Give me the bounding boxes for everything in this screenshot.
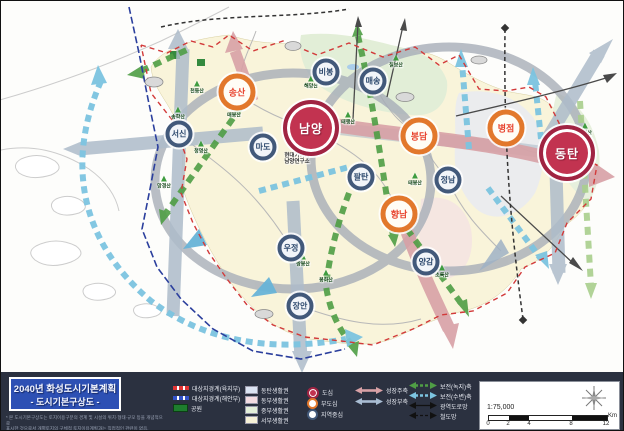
city-node-label: 송산	[229, 86, 246, 99]
scale-tick-label: 0	[486, 421, 489, 427]
park-patch	[197, 59, 205, 66]
legend-item: 철도망	[409, 411, 472, 421]
city-node-label: 정남	[441, 175, 456, 186]
legend-label: 도심	[322, 388, 333, 397]
legend-label: 보전(수변)축	[440, 392, 472, 401]
screenshot-frame: ▲천등산▲송학산▲매봉산▲청명산▲망경산▲해망산▲칠보산▲태행산▲태봉산▲쌍봉산…	[0, 0, 624, 431]
legend-item: 중부생활권	[245, 405, 289, 415]
mountain-icon: ▲	[319, 269, 333, 278]
map-title: 2040년 화성도시기본계획	[14, 381, 116, 395]
city-node-label: 봉담	[411, 130, 428, 143]
legend-axis-group-a: 성장주축성장부축	[355, 385, 408, 407]
legend-label: 성장주축	[386, 386, 408, 395]
compass-icon	[581, 385, 607, 411]
node-swatch	[307, 409, 318, 420]
footnote-line2: 표시한 것으로서 개별토지의 구체적 토지이용계획과는 직접적인 관련이 없음.	[6, 426, 166, 431]
mountain-icon: ▲	[157, 175, 171, 184]
mountain-label: 태행산	[341, 120, 355, 126]
city-node-jiyeok: 우정	[278, 235, 305, 262]
mountain-icon: ▲	[389, 54, 403, 63]
map-graphics	[1, 1, 624, 372]
city-node-label: 동탄	[555, 145, 579, 162]
city-node-budosim: 송산	[219, 74, 256, 111]
mountain-label: 천등산	[190, 89, 204, 95]
legend-label: 대상지경계(육지부)	[192, 384, 240, 393]
mountain-label: 망경산	[157, 184, 171, 190]
city-node-budosim: 봉담	[401, 118, 438, 155]
legend-node-group: 도심부도심지역중심	[307, 387, 343, 420]
city-node-label: 서신	[172, 129, 187, 140]
scale-tick-label: 2	[506, 421, 509, 427]
legend-label: 성장부축	[386, 397, 408, 406]
mountain-marker: ▲봉화산	[319, 269, 333, 284]
mountain-icon: ▲	[171, 106, 185, 115]
legend-item: 도심	[307, 387, 343, 398]
zone-swatch	[245, 386, 258, 394]
scale-tick-label: 4	[527, 421, 530, 427]
mountain-marker: ▲태봉산	[408, 172, 422, 187]
lake	[347, 64, 359, 70]
legend-label: 지역중심	[321, 410, 343, 419]
mountain-marker: ▲망경산	[157, 175, 171, 190]
city-node-label: 마도	[256, 142, 271, 153]
mountain-icon: ▲	[190, 80, 204, 89]
city-node-label: 장안	[293, 301, 308, 312]
zone-swatch	[245, 416, 258, 424]
legend-label: 서부생활권	[261, 416, 289, 425]
city-node-budosim: 병점	[488, 110, 525, 147]
mountain-label: 태봉산	[408, 181, 422, 187]
mountain-label: 칠보산	[389, 63, 403, 69]
scale-ratio: 1:75,000	[487, 404, 514, 411]
legend-item: 서부생활권	[245, 415, 289, 425]
mountain-icon: ▲	[194, 140, 208, 149]
area-label-line: 남양연구소	[284, 159, 309, 165]
title-box: 2040년 화성도시기본계획 - 도시기본구상도 -	[9, 377, 121, 411]
scale-bar-segment	[509, 416, 529, 420]
legend-item: 대상지경계(육지부)	[173, 383, 240, 393]
city-node-label: 양감	[419, 257, 434, 268]
legend-item: 공원	[173, 403, 240, 413]
node-swatch	[307, 398, 318, 409]
city-node-label: 병점	[498, 122, 515, 135]
city-node-dosim: 동탄	[539, 125, 595, 181]
mountain-marker: ▲천등산	[190, 80, 204, 95]
city-node-dosim: 남양	[283, 100, 339, 156]
node-swatch	[307, 387, 319, 399]
legend-item: 부도심	[307, 398, 343, 409]
scale-panel: 1:75,000 024812 Km	[479, 381, 620, 430]
city-node-label: 향남	[391, 208, 408, 221]
legend-label: 공원	[191, 404, 202, 413]
legend-label: 중부생활권	[261, 406, 289, 415]
legend-item: 대상지경계(해안부)	[173, 393, 240, 403]
city-node-label: 남양	[299, 120, 323, 137]
mountain-label: 청명산	[194, 149, 208, 155]
zone-swatch	[245, 406, 258, 414]
axis-arrow-swatch	[409, 407, 437, 425]
legend-label: 보전(녹지)축	[440, 382, 472, 391]
legend-label: 광역도로망	[440, 402, 468, 411]
mountain-icon: ▲	[408, 172, 422, 181]
footnote-line1: * 본 도시기본구상도는 토지이용구분의 경계 및 시설의 위치·형태·규모 등…	[6, 415, 166, 426]
city-node-label: 매송	[366, 76, 381, 87]
legend-label: 대상지경계(해안부)	[192, 394, 240, 403]
city-node-jiyeok: 팔탄	[348, 164, 375, 191]
mountain-label: 쌍봉산	[296, 262, 310, 268]
map: ▲천등산▲송학산▲매봉산▲청명산▲망경산▲해망산▲칠보산▲태행산▲태봉산▲쌍봉산…	[1, 1, 624, 372]
mountain-label: 봉화산	[319, 278, 333, 284]
city-node-budosim: 향남	[381, 196, 418, 233]
zone-swatch	[245, 396, 258, 404]
axis-arrow-swatch	[355, 393, 383, 411]
scale-tick-label: 8	[569, 421, 572, 427]
scale-unit: Km	[608, 413, 617, 419]
mountain-label: 매봉산	[227, 113, 241, 119]
mountain-icon: ▲	[341, 111, 355, 120]
legend-zone-group: 동탄생활권동부생활권중부생활권서부생활권	[245, 385, 289, 425]
park-swatch	[173, 404, 188, 412]
city-node-jiyeok: 매송	[360, 68, 387, 95]
legend-axis-group-b: 보전(녹지)축보전(수변)축광역도로망철도망	[409, 381, 472, 421]
legend-label: 동탄생활권	[261, 386, 289, 395]
legend-label: 철도망	[440, 412, 457, 421]
scale-bar-segment	[529, 416, 571, 420]
legend-label: 동부생활권	[261, 396, 289, 405]
legend-item: 동탄생활권	[245, 385, 289, 395]
mountain-marker: ▲청명산	[194, 140, 208, 155]
scale-bar-segment	[572, 416, 607, 420]
boundary-swatch	[173, 396, 189, 400]
mountain-marker: ▲송학산	[171, 106, 185, 121]
boundary-swatch	[173, 386, 189, 390]
footnote: * 본 도시기본구상도는 토지이용구분의 경계 및 시설의 위치·형태·규모 등…	[6, 415, 166, 431]
city-node-jiyeok: 마도	[250, 134, 277, 161]
city-node-jiyeok: 서신	[166, 121, 193, 148]
legend-label: 부도심	[321, 399, 338, 408]
legend-boundary-group: 대상지경계(육지부)대상지경계(해안부)공원	[173, 383, 240, 413]
city-node-label: 비봉	[319, 67, 334, 78]
city-node-label: 팔탄	[354, 172, 369, 183]
mountain-marker: ▲태행산	[341, 111, 355, 126]
legend-item: 성장부축	[355, 396, 408, 407]
mountain-marker: ▲칠보산	[389, 54, 403, 69]
scale-bar-segment	[489, 416, 509, 420]
city-node-jiyeok: 정남	[435, 167, 462, 194]
city-node-label: 우정	[284, 243, 299, 254]
legend-item: 동부생활권	[245, 395, 289, 405]
map-subtitle: - 도시기본구상도 -	[31, 395, 100, 408]
legend-band: 2040년 화성도시기본계획 - 도시기본구상도 - * 본 도시기본구상도는 …	[1, 372, 624, 431]
city-node-jiyeok: 장안	[287, 293, 314, 320]
mountain-label: 해망산	[304, 84, 318, 90]
city-node-jiyeok: 양감	[413, 249, 440, 276]
city-node-jiyeok: 비봉	[313, 59, 340, 86]
scale-tick-label: 12	[603, 421, 610, 427]
legend-item: 지역중심	[307, 409, 343, 420]
mountain-label: 초록산	[435, 273, 449, 279]
